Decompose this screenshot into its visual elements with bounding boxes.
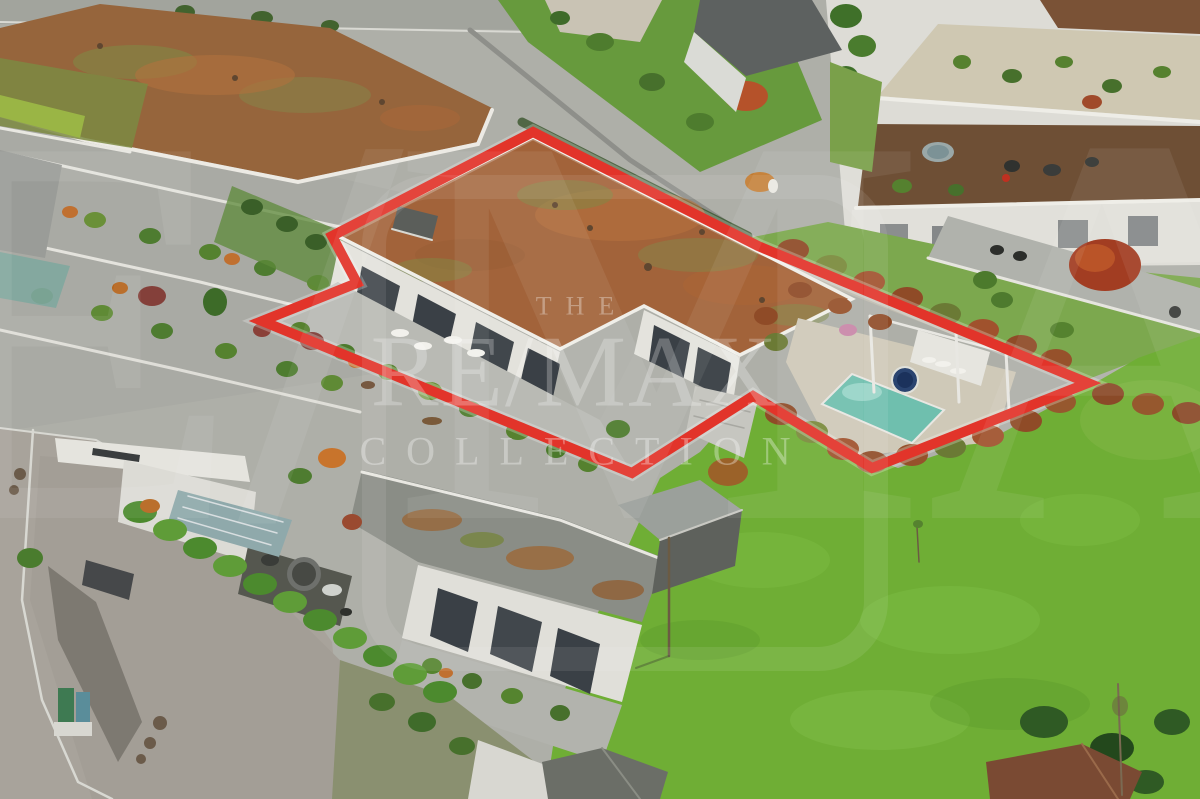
balcony-orange-tree xyxy=(318,448,346,468)
tr-window xyxy=(1058,220,1088,248)
tr-tree xyxy=(848,35,876,57)
manhole xyxy=(144,737,156,749)
cp-roof-vent xyxy=(699,229,705,235)
aerial-photo: RE/MAX THE RE/MAX COLLECTION xyxy=(0,0,1200,799)
tr-furniture xyxy=(1004,160,1020,172)
ll-bush xyxy=(501,688,523,704)
utility-box xyxy=(58,688,74,722)
tr-pot xyxy=(1169,306,1181,318)
hedge-autumn xyxy=(1132,393,1164,415)
ll-bush xyxy=(462,673,482,689)
gap-hedge xyxy=(276,216,298,232)
tr-furniture xyxy=(1043,164,1061,176)
tl-plant xyxy=(276,361,298,377)
ll-bush xyxy=(550,705,570,721)
hedge-autumn xyxy=(828,298,852,314)
cp-lounger xyxy=(467,349,485,357)
tr-deck-mid xyxy=(858,124,1200,206)
tl-plant-orange xyxy=(112,282,128,294)
hedge-ball xyxy=(183,537,217,559)
balcony-bush xyxy=(288,468,312,484)
cp-planter-box xyxy=(361,381,375,389)
tl-red-tree xyxy=(138,286,166,306)
hedge-autumn xyxy=(754,307,778,325)
tr-big-red-shrub-hi xyxy=(1075,244,1115,272)
ll-roof-sedum xyxy=(402,509,462,531)
tc-bush xyxy=(639,73,665,91)
ll-roof-moss xyxy=(460,532,504,548)
tl-plant xyxy=(91,305,113,321)
hedge-autumn xyxy=(788,282,812,298)
tc-bush xyxy=(586,33,614,51)
tr-pot-plant xyxy=(953,55,971,69)
fire-pit-inner xyxy=(292,562,316,586)
ll-bush-orange xyxy=(439,668,453,678)
gap-hedge xyxy=(241,199,263,215)
sapling-top xyxy=(913,520,923,528)
hedge-ball xyxy=(363,645,397,667)
meadow-light xyxy=(1020,494,1140,546)
tl-roof-rust xyxy=(380,105,460,131)
balcony-red-shrub xyxy=(342,514,362,530)
hedge-ball xyxy=(423,681,457,703)
cp-roof-moss xyxy=(517,180,613,210)
tr-hot-tub-water xyxy=(927,145,949,159)
hedge-ball xyxy=(213,555,247,577)
grill xyxy=(340,608,352,616)
tr-pot-plant xyxy=(1102,79,1122,93)
hedge-ball xyxy=(273,591,307,613)
cp-roof-vent xyxy=(644,263,652,271)
meadow-dark xyxy=(640,620,760,660)
tr-tree xyxy=(830,4,862,28)
hedge-autumn xyxy=(764,333,788,351)
tc-bush xyxy=(550,11,570,25)
tl-roof-vent xyxy=(97,43,103,49)
bottom-bush xyxy=(449,737,475,755)
manhole xyxy=(14,468,26,480)
ll-roof-sedum xyxy=(506,546,574,570)
cp-lounger xyxy=(444,336,462,344)
tl-plant-orange xyxy=(224,253,240,265)
br-tree xyxy=(1154,709,1190,735)
cp-lounger xyxy=(414,342,432,350)
tr-pot-plant xyxy=(1055,56,1073,68)
tr-terrace-bush xyxy=(973,271,997,289)
manhole xyxy=(9,485,19,495)
hedge-ball xyxy=(393,663,427,685)
tr-deck-bush xyxy=(948,184,964,196)
tr-pot-plant xyxy=(1002,69,1022,83)
lawn-bush xyxy=(1050,322,1074,338)
gap-hedge xyxy=(305,234,327,250)
tl-roof-rust xyxy=(135,55,295,95)
cp-bush xyxy=(606,420,630,438)
tl-plant xyxy=(139,228,161,244)
bottom-bush xyxy=(369,693,395,711)
cp-roof-vent xyxy=(552,202,558,208)
hedge-ball xyxy=(243,573,277,595)
tl-plant xyxy=(215,343,237,359)
tr-deck-bush xyxy=(892,179,912,193)
tl-conifer xyxy=(203,288,227,316)
tl-plant xyxy=(151,323,173,339)
scene-svg xyxy=(0,0,1200,799)
tr-red-item xyxy=(1002,174,1010,182)
tl-plant xyxy=(84,212,106,228)
tr-terrace-chair xyxy=(1013,251,1027,261)
cp-roof-vent xyxy=(587,225,593,231)
hedge-orange xyxy=(140,499,160,513)
tr-window xyxy=(1128,216,1158,246)
pool-lounger xyxy=(935,361,951,367)
cp-orange-tree xyxy=(708,458,748,486)
cp-roof-vent xyxy=(759,297,765,303)
tr-red-shrub xyxy=(1082,95,1102,109)
tr-terrace-chair xyxy=(990,245,1004,255)
hedge-ball xyxy=(303,609,337,631)
hedge-autumn xyxy=(868,314,892,330)
tl-roof-vent xyxy=(232,75,238,81)
manhole xyxy=(153,716,167,730)
utility-box xyxy=(76,692,90,722)
bottom-bush xyxy=(408,712,436,732)
tr-pot-plant xyxy=(1153,66,1171,78)
hedge-ball xyxy=(153,519,187,541)
pool-water-light xyxy=(842,383,882,401)
pool-lounger xyxy=(922,357,936,363)
tc-white-sculpture xyxy=(768,179,778,193)
road-tree xyxy=(17,548,43,568)
utility-pedestal xyxy=(54,722,92,736)
ll-roof-sedum xyxy=(592,580,644,600)
cp-bench xyxy=(422,417,442,425)
sapling-top xyxy=(1112,696,1128,716)
spa-tub-water xyxy=(897,372,913,388)
manhole xyxy=(136,754,146,764)
br-tree xyxy=(1020,706,1068,738)
lounge-chair xyxy=(322,584,342,596)
tl-plant xyxy=(199,244,221,260)
tl-plant xyxy=(321,375,343,391)
cp-lounger xyxy=(391,329,409,337)
hedge-ball xyxy=(333,627,367,649)
tl-roof-vent xyxy=(379,99,385,105)
tl-plant-orange xyxy=(62,206,78,218)
lawn-bush xyxy=(991,292,1013,308)
tr-furniture xyxy=(1085,157,1099,167)
tc-bush xyxy=(686,113,714,131)
meadow-light xyxy=(860,586,1040,654)
pool-flowers xyxy=(839,324,857,336)
